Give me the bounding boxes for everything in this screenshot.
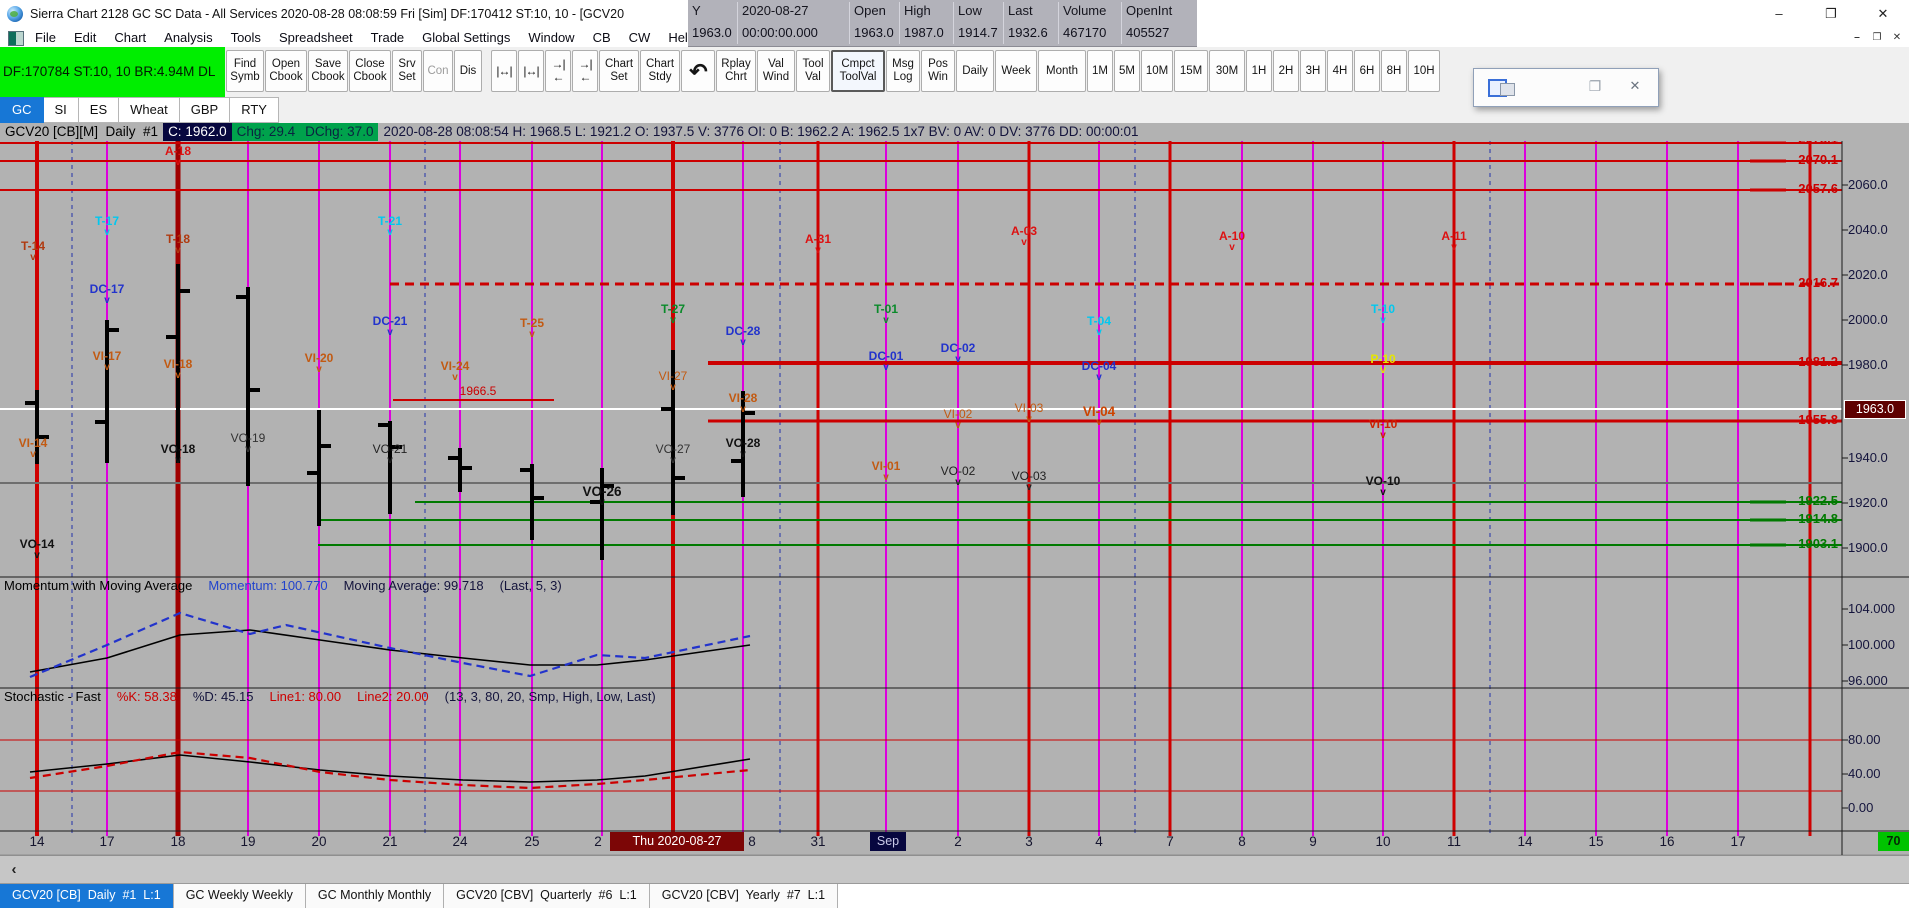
scale-tick-100-000: 100.000 [1848,637,1895,652]
down-arrow-icon: v [415,373,495,382]
xaxis-label-2: 2 [936,834,980,849]
momentum-caption-row: Momentum with Moving AverageMomentum: 10… [4,578,578,593]
chart-area[interactable] [0,123,1909,855]
xaxis-label-8: 8 [1220,834,1264,849]
chart-label-t-17: T-17v [67,215,147,237]
toolbar-button-cmpct-toolval[interactable]: Cmpct ToolVal [831,50,885,92]
toolbar-button-find-symb[interactable]: Find Symb [226,50,264,92]
xaxis-label-15: 15 [1574,834,1618,849]
chart-label-vi-14: VI-14v [0,437,73,459]
quote-value-2020-08-27: 00:00:00.000 [742,25,818,40]
quote-value-y: 1963.0 [692,25,732,40]
app-globe-icon [7,6,23,22]
toolbar-button-dis[interactable]: Dis [454,50,482,92]
down-arrow-icon: v [67,363,147,372]
chart-label-p-10: P-10v [1343,353,1423,375]
caption-k-58-38: %K: 58.38 [117,689,177,704]
chart-label-vi-17: VI-17v [67,350,147,372]
xaxis-label-14: 14 [15,834,59,849]
down-arrow-icon: v [989,415,1069,424]
chart-day-change: DChg: 37.0 [300,123,378,141]
menu-cw[interactable]: CW [620,28,660,47]
scale-tick-2000-0: 2000.0 [1848,312,1888,327]
chart-window-icon [8,31,24,46]
toolbar-button-daily[interactable]: Daily [956,50,994,92]
chart-label-vo-10: VO-10v [1343,475,1423,497]
down-arrow-icon: v [350,456,430,465]
child-restore-icon[interactable]: ❐ [1867,30,1887,45]
toolbar-expand-width-icon[interactable]: |↔| [491,50,517,92]
chart-label-vo-19: VO-19v [208,432,288,454]
xaxis-label-25: 25 [510,834,554,849]
caption-moving-average-99-718: Moving Average: 99.718 [344,578,484,593]
chart-change: Chg: 29.4 [232,123,301,141]
quote-column-divider [899,2,900,44]
chart-label-vi-28: VI-28v [703,392,783,414]
down-arrow-icon: v [138,371,218,380]
down-arrow-icon: v [633,316,713,325]
scale-tick-80-00: 80.00 [1848,732,1881,747]
chart-label-vo-27: VO-27v [633,443,713,465]
chart-label-dc-04: DC-04v [1059,360,1139,382]
symbol-tab-gbp[interactable]: GBP [180,97,230,123]
scale-tick-1940-0: 1940.0 [1848,450,1888,465]
chart-label-vi-03: VI-03v [989,402,1069,424]
study-level-2016-7: 2016.7 [1782,275,1838,290]
close-button[interactable]: ✕ [1857,0,1909,28]
chart-label-a-10: A-10v [1192,230,1272,252]
chart-label-t-10: T-10v [1343,303,1423,325]
chart-label-dc-21: DC-21v [350,315,430,337]
toolbar-button-15m[interactable]: 15M [1174,50,1208,92]
chart-label-1966-5: 1966.5 [438,385,518,398]
study-level-2070-1: 2070.1 [1782,152,1838,167]
down-arrow-icon: v [703,338,783,347]
down-arrow-icon: v [138,246,218,255]
chart-label-vo-21: VO-21v [350,443,430,465]
toolbar-button-1m[interactable]: 1M [1087,50,1113,92]
toolbar-button-con[interactable]: Con [423,50,453,92]
toolbar-button-2h[interactable]: 2H [1273,50,1299,92]
toolbar-button-save-cbook[interactable]: Save Cbook [308,50,348,92]
menu-cb[interactable]: CB [584,28,620,47]
toolbar-button-5m[interactable]: 5M [1114,50,1140,92]
down-arrow-icon: v [1059,373,1139,382]
xaxis-label-3: 3 [1007,834,1051,849]
scale-tick-1920-0: 1920.0 [1848,495,1888,510]
menu-trade[interactable]: Trade [362,28,413,47]
chart-label-vo-02: VO-02v [918,465,998,487]
down-arrow-icon: v [918,421,998,430]
scale-tick-2020-0: 2020.0 [1848,267,1888,282]
scroll-left-arrow-icon[interactable]: ‹ [5,859,23,881]
caption-momentum-100-770: Momentum: 100.770 [208,578,327,593]
down-arrow-icon: v [1059,328,1139,337]
chart-label-a-18: A-18v [138,145,218,167]
xaxis-label-19: 19 [226,834,270,849]
scale-tick-40-00: 40.00 [1848,766,1881,781]
symbol-tab-es[interactable]: ES [79,97,119,123]
quote-value-last: 1932.6 [1008,25,1048,40]
down-arrow-icon: v [0,253,73,262]
caption-13-3-80-20-smp-high-low-last: (13, 3, 80, 20, Smp, High, Low, Last) [445,689,656,704]
toolbar-button-1h[interactable]: 1H [1246,50,1272,92]
down-arrow-icon: v [138,456,218,465]
window-thumbnail-shadow-icon [1500,83,1515,96]
mini-maximize-button[interactable]: ❐ [1582,73,1608,99]
chart-tab-gc-monthly-monthly[interactable]: GC Monthly Monthly [306,884,444,908]
toolbar-button-8h[interactable]: 8H [1381,50,1407,92]
chart-label-vi-02: VI-02v [918,408,998,430]
quote-value-low: 1914.7 [958,25,998,40]
quote-header-low: Low [958,3,982,18]
chart-label-t-01: T-01v [846,303,926,325]
chart-label-vi-04: VI-04v [1059,405,1139,427]
stochastic-caption-row: Stochastic - Fast%K: 58.38%D: 45.15Line1… [4,689,672,704]
xaxis-label-24: 24 [438,834,482,849]
down-arrow-icon: v [1192,243,1272,252]
menu-edit[interactable]: Edit [65,28,105,47]
toolbar-button-3h[interactable]: 3H [1300,50,1326,92]
chart-label-vo-03: VO-03v [989,470,1069,492]
toolbar-compress-width-alt-icon[interactable]: →|← [572,50,598,92]
xaxis-label-16: 16 [1645,834,1689,849]
chart-label-t-21: T-21v [350,215,430,237]
toolbar-expand-width-alt-icon[interactable]: |↔| [518,50,544,92]
chart-label-t-27: T-27v [633,303,713,325]
study-level-1981-2: 1981.2 [1782,354,1838,369]
down-arrow-icon: v [208,445,288,454]
quote-header-open: Open [854,3,886,18]
toolbar-button-chart-set[interactable]: Chart Set [599,50,639,92]
scale-tick-96-000: 96.000 [1848,673,1888,688]
chart-label-dc-28: DC-28v [703,325,783,347]
down-arrow-icon: v [1343,366,1423,375]
symbol-tab-si[interactable]: SI [44,97,79,123]
quote-header-2020-08-27: 2020-08-27 [742,3,809,18]
menu-window[interactable]: Window [519,28,583,47]
caption-line2-20-00: Line2: 20.00 [357,689,429,704]
down-arrow-icon: v [138,158,218,167]
study-level-1955-8: 1955.8 [1782,412,1838,427]
down-arrow-icon: v [846,316,926,325]
last-price-box: 1963.0 [1844,400,1906,419]
toolbar-button-rplay-chrt[interactable]: Rplay Chrt [716,50,756,92]
quote-value-high: 1987.0 [904,25,944,40]
down-arrow-icon: v [350,328,430,337]
chart-label-vi-27: VI-27v [633,370,713,392]
quote-table: Y1963.02020-08-2700:00:00.000Open1963.0H… [688,0,1197,47]
chart-header: GCV20 [CB][M] Daily #1 C: 1962.0 Chg: 29… [0,123,1909,141]
toolbar-button-chart-stdy[interactable]: Chart Stdy [640,50,680,92]
chart-tab-gcv20-cb-daily-1-l-1[interactable]: GCV20 [CB] Daily #1 L:1 [0,884,174,908]
chart-label-vo-18: VO-18v [138,443,218,465]
menu-global-settings[interactable]: Global Settings [413,28,519,47]
month-label-box: Sep [870,832,906,851]
xaxis-label-14: 14 [1503,834,1547,849]
symbol-tab-wheat[interactable]: Wheat [119,97,180,123]
chart-label-t-04: T-04v [1059,315,1139,337]
chart-label-vi-18: VI-18v [138,358,218,380]
label-text: 1966.5 [438,385,518,398]
chart-label-vi-24: VI-24v [415,360,495,382]
down-arrow-icon: v [1414,243,1494,252]
toolbar-button-srv-set[interactable]: Srv Set [392,50,422,92]
down-arrow-icon: v [1343,431,1423,440]
menu-tools[interactable]: Tools [222,28,270,47]
toolbar-button-10h[interactable]: 10H [1408,50,1440,92]
down-arrow-icon: v [350,228,430,237]
down-arrow-icon: v [633,383,713,392]
caption-d-45-15: %D: 45.15 [193,689,254,704]
down-arrow-icon: v [918,478,998,487]
label-text: VI-14 [0,437,73,450]
down-arrow-icon: v [0,450,73,459]
quote-header-y: Y [692,3,701,18]
scale-tick-2040-0: 2040.0 [1848,222,1888,237]
scale-tick-1980-0: 1980.0 [1848,357,1888,372]
quote-header-volume: Volume [1063,3,1106,18]
axis-green-badge: 70 [1878,832,1909,851]
caption-momentum-with-moving-average: Momentum with Moving Average [4,578,192,593]
study-level-1914-8: 1914.8 [1782,511,1838,526]
toolbar-button-msg-log[interactable]: Msg Log [886,50,920,92]
caption-last-5-3: (Last, 5, 3) [500,578,562,593]
scale-tick-1900-0: 1900.0 [1848,540,1888,555]
chart-label-a-11: A-11v [1414,230,1494,252]
xaxis-label-21: 21 [368,834,412,849]
minimize-button[interactable]: – [1753,0,1805,28]
xaxis-label-11: 11 [1432,834,1476,849]
toolbar-button-pos-win[interactable]: Pos Win [921,50,955,92]
scale-tick-104-000: 104.000 [1848,601,1895,616]
chart-label-t-25: T-25v [492,317,572,339]
toolbar-button-4h[interactable]: 4H [1327,50,1353,92]
chart-label-dc-17: DC-17v [67,283,147,305]
quote-column-divider [849,2,850,44]
highlighted-date-box: Thu 2020-08-27 [610,832,744,851]
quote-column-divider [953,2,954,44]
chart-last-price: C: 1962.0 [163,123,232,141]
down-arrow-icon: v [984,238,1064,247]
toolbar-button-val-wind[interactable]: Val Wind [757,50,795,92]
down-arrow-icon: v [67,228,147,237]
chart-label-dc-01: DC-01v [846,350,926,372]
menu-spreadsheet[interactable]: Spreadsheet [270,28,362,47]
xaxis-label-20: 20 [297,834,341,849]
chart-label-t-18: T-18v [138,233,218,255]
chart-label-vi-01: VI-01v [846,460,926,482]
quote-value-openint: 405527 [1126,25,1169,40]
down-arrow-icon: v [1059,418,1139,427]
child-window-controls: ⎯❐✕ [1847,30,1907,45]
study-level-1903-1: 1903.1 [1782,536,1838,551]
menu-analysis[interactable]: Analysis [155,28,221,47]
toolbar-button-month[interactable]: Month [1038,50,1086,92]
xaxis-label-10: 10 [1361,834,1405,849]
down-arrow-icon: v [989,483,1069,492]
menu-items: FileEditChartAnalysisToolsSpreadsheetTra… [26,28,704,47]
down-arrow-icon: v [633,456,713,465]
xaxis-label-18: 18 [156,834,200,849]
down-arrow-icon: v [67,296,147,305]
chart-label-vi-10: VI-10v [1343,418,1423,440]
toolbar-button-6h[interactable]: 6H [1354,50,1380,92]
toolbar-button-close-cbook[interactable]: Close Cbook [349,50,391,92]
connection-status-badge: DF:170784 ST:10, 10 BR:4.94M DL [0,47,225,97]
caption-stochastic-fast: Stochastic - Fast [4,689,101,704]
chart-tab-bar: GCV20 [CB] Daily #1 L:1GC Weekly WeeklyG… [0,883,1909,908]
chart-label-a-03: A-03v [984,225,1064,247]
down-arrow-icon: v [703,450,783,459]
toolbar-button-open-cbook[interactable]: Open Cbook [265,50,307,92]
chart-label-vo-28: VO-28v [703,437,783,459]
xaxis-label-7: 7 [1148,834,1192,849]
scale-tick-2060-0: 2060.0 [1848,177,1888,192]
toolbar-buttons: Find SymbOpen CbookSave CbookClose Cbook… [226,50,1441,92]
down-arrow-icon: v [0,551,77,560]
symbol-tab-rty[interactable]: RTY [230,97,279,123]
maximize-button[interactable]: ❐ [1805,0,1857,28]
chart-tab-gcv20-cbv-quarterly-6-l-1[interactable]: GCV20 [CBV] Quarterly #6 L:1 [444,884,650,908]
study-level-1922-5: 1922.5 [1782,493,1838,508]
quote-value-volume: 467170 [1063,25,1106,40]
down-arrow-icon: v [279,365,359,374]
chart-label-t-14: T-14v [0,240,73,262]
quote-column-divider [1058,2,1059,44]
down-arrow-icon: v [846,473,926,482]
toolbar-button-tool-val[interactable]: Tool Val [796,50,830,92]
window-title: Sierra Chart 2128 GC SC Data - All Servi… [30,0,624,28]
down-arrow-icon: v [562,498,642,507]
quote-column-divider [1003,2,1004,44]
xaxis-label-9: 9 [1291,834,1335,849]
xaxis-label-17: 17 [85,834,129,849]
xaxis-label-17: 17 [1716,834,1760,849]
chart-ohlc-info: 2020-08-28 08:08:54 H: 1968.5 L: 1921.2 … [378,123,1143,141]
chart-label-vo-14: VO-14v [0,538,77,560]
scale-tick-0-00: 0.00 [1848,800,1873,815]
study-level-2057-6: 2057.6 [1782,181,1838,196]
quote-header-openint: OpenInt [1126,3,1172,18]
caption-line1-80-00: Line1: 80.00 [270,689,342,704]
horizontal-scrollbar[interactable]: ‹ [0,855,1909,884]
toolbar-undo-arrow-icon[interactable]: ↶ [681,50,715,92]
quote-column-divider [737,2,738,44]
down-arrow-icon: v [492,330,572,339]
child-close-icon[interactable]: ✕ [1887,30,1907,45]
xaxis-label-31: 31 [796,834,840,849]
chart-tab-gc-weekly-weekly[interactable]: GC Weekly Weekly [174,884,306,908]
chart-label-vo-26: VO-26v [562,485,642,507]
symbol-tab-gc[interactable]: GC [0,97,44,123]
down-arrow-icon: v [778,246,858,255]
down-arrow-icon: v [1343,488,1423,497]
quote-header-last: Last [1008,3,1033,18]
toolbar-compress-width-icon[interactable]: →|← [545,50,571,92]
sierra-chart-window: Sierra Chart 2128 GC SC Data - All Servi… [0,0,1909,907]
floating-tool-window[interactable]: ❐ ✕ [1473,68,1659,107]
chart-label-dc-02: DC-02v [918,342,998,364]
down-arrow-icon: v [918,355,998,364]
down-arrow-icon: v [703,405,783,414]
chart-tab-gcv20-cbv-yearly-7-l-1[interactable]: GCV20 [CBV] Yearly #7 L:1 [650,884,838,908]
quote-value-open: 1963.0 [854,25,894,40]
toolbar-button-week[interactable]: Week [995,50,1037,92]
chart-label-a-31: A-31v [778,233,858,255]
menu-chart[interactable]: Chart [105,28,155,47]
toolbar-button-30m[interactable]: 30M [1209,50,1245,92]
chart-label-vi-20: VI-20v [279,352,359,374]
mini-close-button[interactable]: ✕ [1622,73,1648,99]
menu-file[interactable]: File [26,28,65,47]
down-arrow-icon: v [1343,316,1423,325]
quote-column-divider [1121,2,1122,44]
chart-symbol-title: GCV20 [CB][M] Daily #1 [0,123,163,141]
toolbar-button-10m[interactable]: 10M [1141,50,1173,92]
label-text: T-14 [0,240,73,253]
down-arrow-icon: v [846,363,926,372]
child-minimize-icon[interactable]: ⎯ [1847,30,1867,45]
quote-header-high: High [904,3,931,18]
xaxis-label-4: 4 [1077,834,1121,849]
